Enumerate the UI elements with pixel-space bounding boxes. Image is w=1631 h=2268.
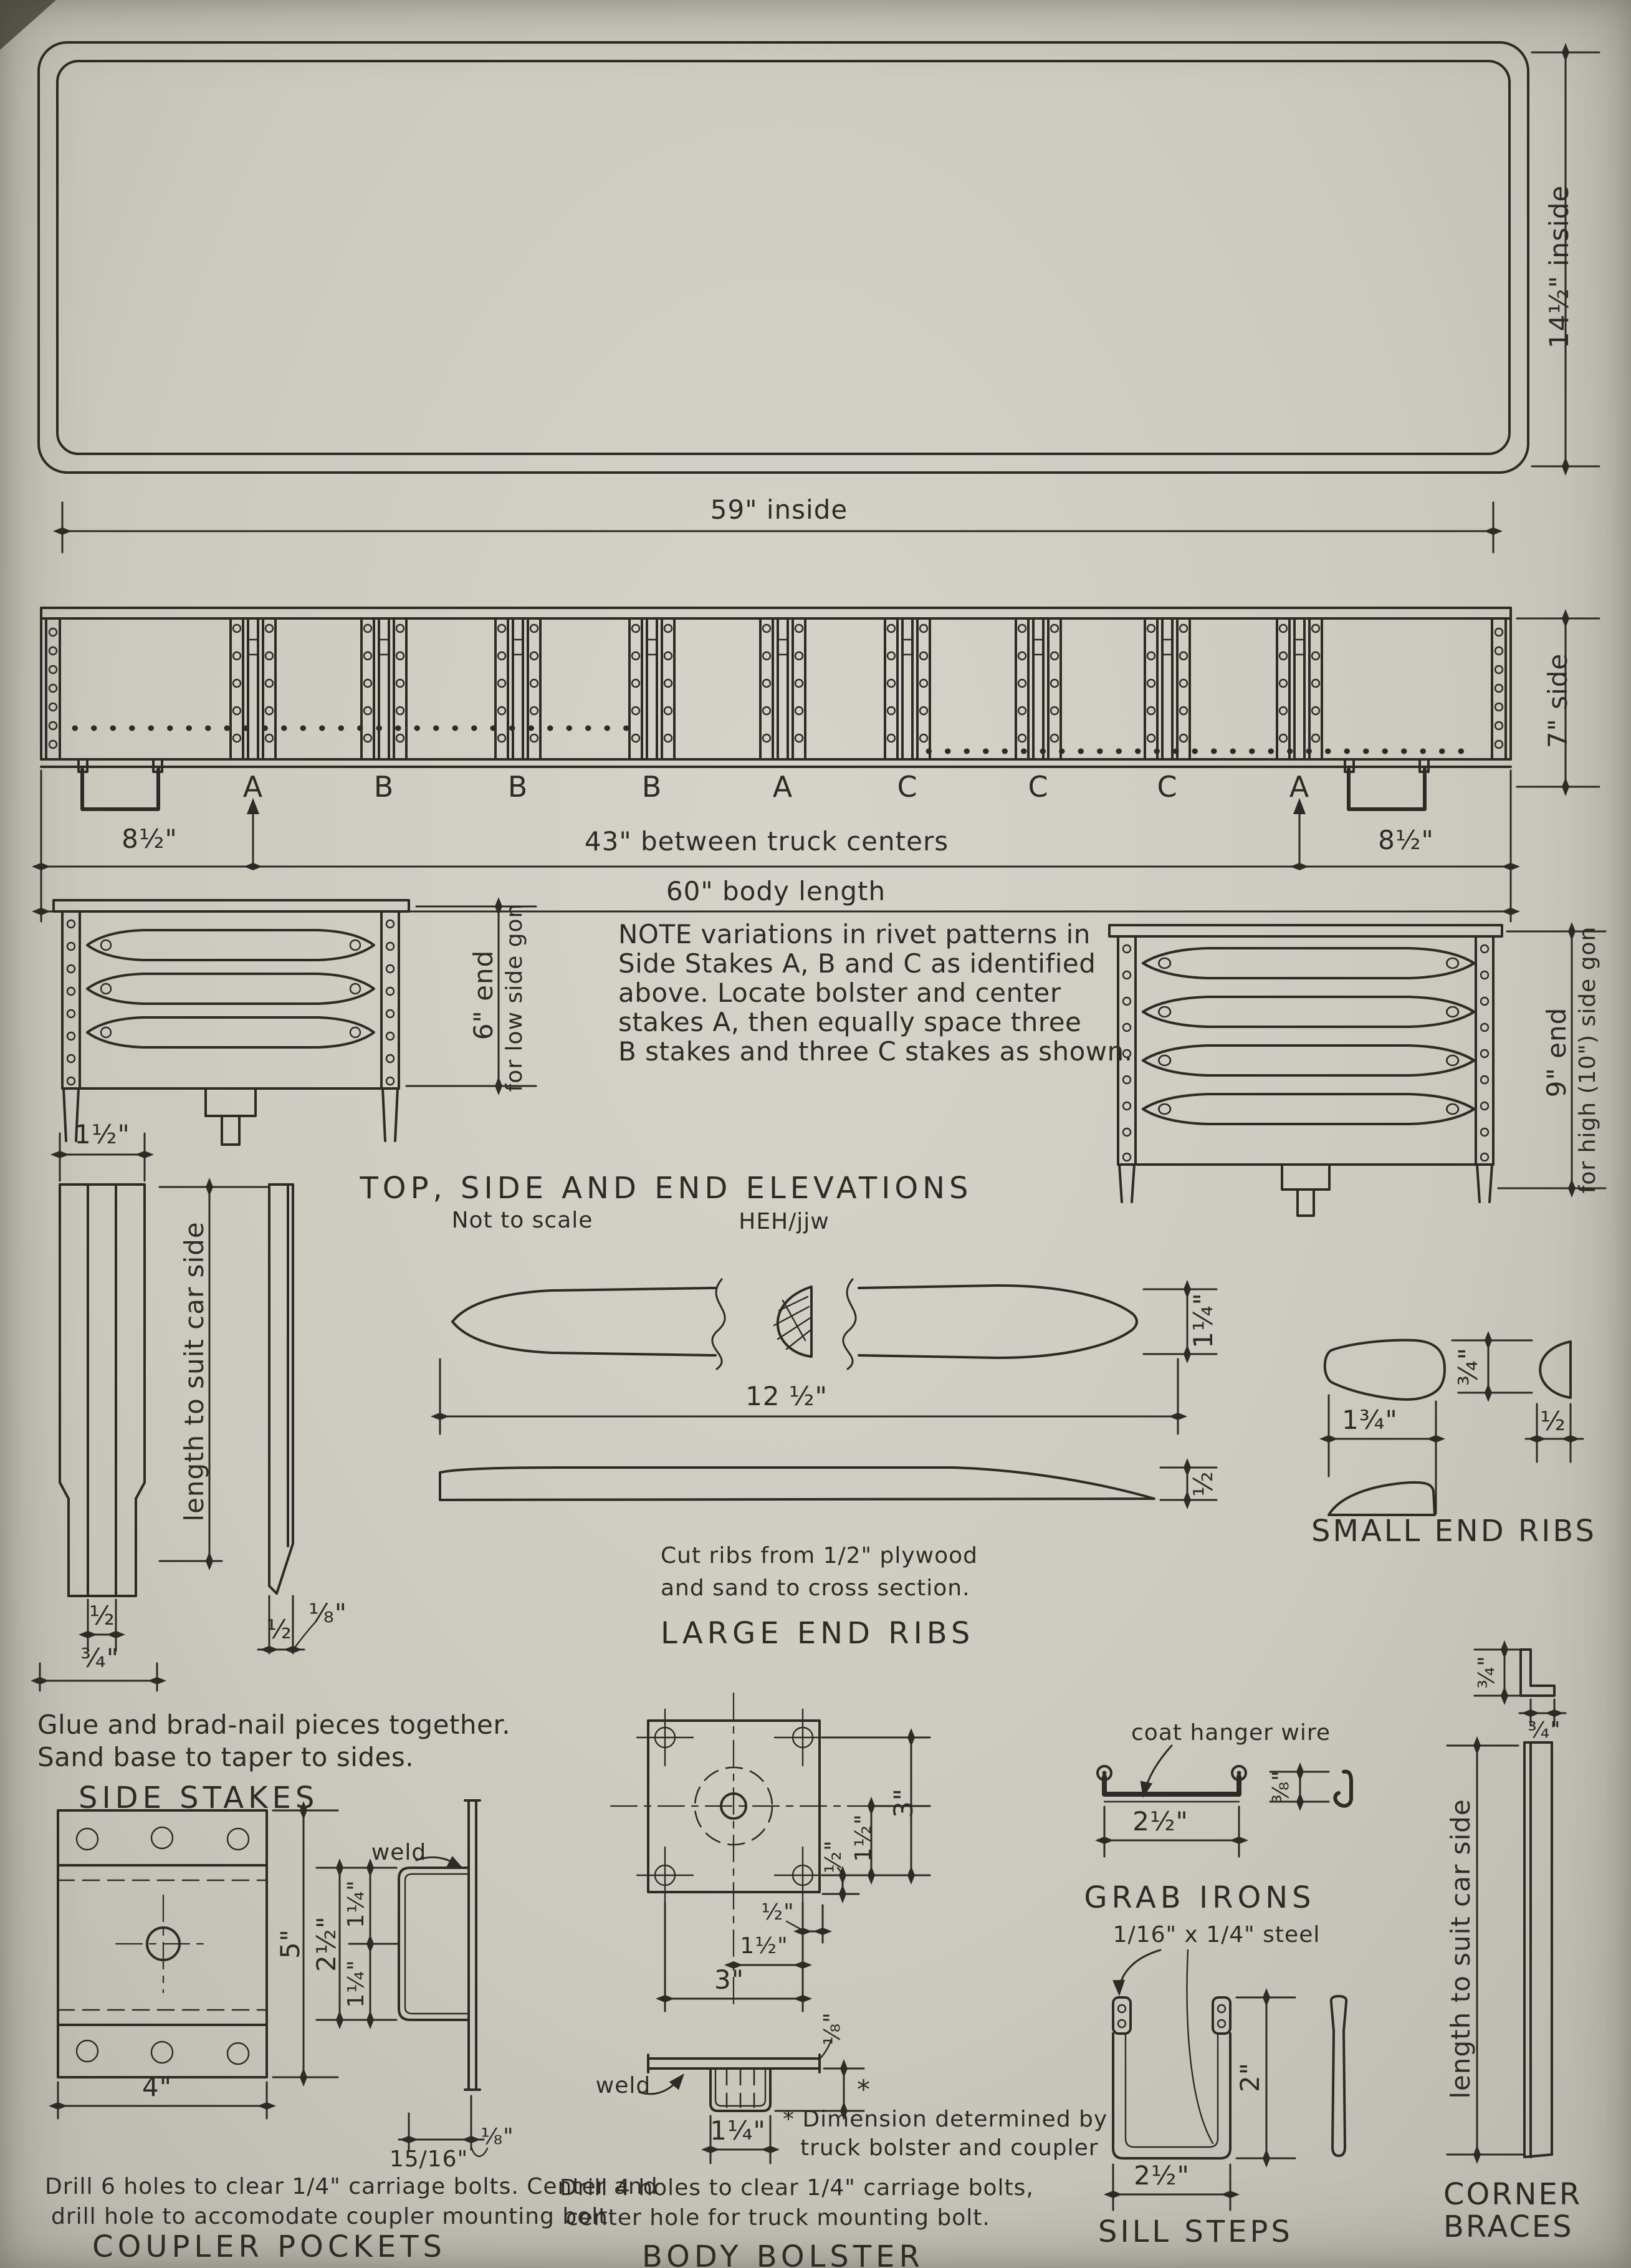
coupler-note-2: drill hole to accomodate coupler mountin… — [51, 2206, 608, 2228]
stake-dim-eighth: ⅛" — [309, 1600, 347, 1627]
dim-overhang-right: 8½" — [1378, 827, 1434, 853]
stake-label: A — [1289, 772, 1309, 801]
stake-label: A — [243, 772, 263, 801]
stake-label: B — [642, 772, 662, 801]
bolster-dim-bottom-half: ½" — [761, 1901, 794, 1924]
bolster-dim-bottom-one-half: 1½" — [740, 1935, 788, 1958]
plan-sheet: 59" inside 14½" inside A B B B A C C C A… — [0, 0, 1631, 2268]
stake-dim-three-quarter: ¾" — [80, 1645, 119, 1671]
stake-dim-width: 1½" — [74, 1122, 130, 1148]
stake-label: B — [508, 772, 529, 801]
bolster-dim-right-half: ½" — [823, 1840, 845, 1873]
grab-iron-dim-width: 2½" — [1132, 1809, 1189, 1835]
stake-label: B — [374, 772, 395, 801]
stake-dim-length: length to suit car side — [181, 1221, 208, 1521]
sheet-title: TOP, SIDE AND END ELEVATIONS — [360, 1173, 972, 1203]
coupler-weld-label: weld — [371, 1842, 426, 1864]
sill-step-callout: 1/16" x 1/4" steel — [1113, 1924, 1321, 1946]
dim-low-end-sub: for low side gon — [504, 903, 526, 1092]
photo-corner-artifact — [0, 0, 56, 50]
small-rib-dim-length: 1¾" — [1342, 1407, 1398, 1433]
dim-side-height: 7" side — [1545, 653, 1571, 748]
drafter-credit: HEH/jjw — [739, 1211, 829, 1233]
scale-note: Not to scale — [452, 1209, 593, 1232]
bolster-dim-right-three: 3" — [891, 1788, 917, 1818]
bolster-star-marker: * — [857, 2077, 871, 2103]
dim-inside-width: 14½" inside — [1546, 185, 1572, 348]
grab-irons-drawing — [1095, 1746, 1351, 1857]
dim-inside-length: 59" inside — [710, 497, 848, 523]
coupler-pockets-title: COUPLER POCKETS — [92, 2232, 446, 2262]
corner-brace-dim-a: ¾" — [1476, 1655, 1498, 1688]
small-rib-dim-height: ¾" — [1455, 1347, 1481, 1386]
note-line-4: stakes A, then equally space three — [618, 1009, 1081, 1035]
rib-note-1: Cut ribs from 1/2" plywood — [661, 1545, 978, 1567]
stake-label: A — [773, 772, 793, 801]
stake-label: C — [1028, 772, 1048, 801]
bolster-star-note-1: * Dimension determined by — [783, 2108, 1107, 2131]
small-rib-dim-thickness: ½ — [1540, 1408, 1566, 1434]
dim-truck-centers: 43" between truck centers — [585, 829, 949, 855]
note-line-3: above. Locate bolster and center — [618, 980, 1061, 1006]
coupler-dim-strap: 2½" — [313, 1916, 340, 1972]
body-bolster-title: BODY BOLSTER — [642, 2242, 924, 2268]
stake-dim-half-b: ½ — [266, 1617, 292, 1643]
bolster-weld-label: weld — [596, 2075, 651, 2097]
rib-dim-length: 12 ½" — [745, 1383, 828, 1410]
corner-braces-title-1: CORNER — [1443, 2179, 1582, 2209]
grab-iron-dim-drop: ⅜" — [1270, 1770, 1293, 1803]
large-end-ribs-title: LARGE END RIBS — [661, 1618, 974, 1648]
coupler-dim-upper: 1¼" — [345, 1880, 368, 1928]
small-end-ribs-title: SMALL END RIBS — [1311, 1516, 1597, 1546]
coupler-dim-depth: 15/16" — [390, 2148, 468, 2171]
stake-label: C — [1157, 772, 1177, 801]
rib-note-2: and sand to cross section. — [661, 1577, 970, 1600]
corner-brace-dim-length: length to suit car side — [1448, 1799, 1474, 2098]
grab-iron-callout: coat hanger wire — [1131, 1722, 1331, 1744]
coupler-dim-height: 5" — [277, 1929, 304, 1959]
stake-note-2: Sand base to taper to sides. — [37, 1744, 414, 1771]
end-view-high — [1109, 922, 1605, 1216]
bolster-note-1: Drill 4 holes to clear 1/4" carriage bol… — [560, 2177, 1034, 2199]
bolster-dim-bottom-three: 3" — [714, 1967, 744, 1993]
drawing-canvas — [0, 0, 1631, 2268]
bolster-dim-pocket: 1¼" — [710, 2118, 766, 2144]
stake-dim-half: ½ — [89, 1603, 115, 1629]
end-view-low — [54, 897, 536, 1145]
sill-steps-title: SILL STEPS — [1098, 2217, 1293, 2247]
coupler-dim-thickness: ⅛" — [481, 2126, 514, 2148]
rib-dim-thickness: ½ — [1190, 1471, 1217, 1497]
coupler-dim-width: 4" — [142, 2074, 172, 2100]
stake-label: C — [897, 772, 917, 801]
bolster-star-note-2: truck bolster and coupler — [800, 2137, 1099, 2160]
bolster-dim-right-one-half: 1½" — [853, 1814, 875, 1862]
dim-high-end: 9" end — [1544, 1007, 1570, 1098]
sill-step-dim-width: 2½" — [1134, 2163, 1190, 2189]
body-bolster-drawing — [611, 1693, 930, 2163]
corner-brace-dim-b: ¾" — [1528, 1719, 1561, 1742]
note-line-5: B stakes and three C stakes as shown. — [618, 1039, 1133, 1065]
grab-irons-title: GRAB IRONS — [1084, 1883, 1315, 1913]
bolster-note-2: center hole for truck mounting bolt. — [566, 2207, 990, 2229]
sill-step-dim-height: 2" — [1237, 2062, 1263, 2092]
coupler-dim-lower: 1¼" — [345, 1959, 368, 2007]
top-view — [39, 42, 1599, 552]
note-line-2: Side Stakes A, B and C as identified — [618, 951, 1096, 977]
dim-low-end: 6" end — [471, 950, 497, 1040]
dim-body-length: 60" body length — [666, 878, 886, 905]
side-view — [32, 608, 1599, 921]
dim-high-end-sub: for high (10") side gon — [1577, 926, 1599, 1194]
side-stakes-title: SIDE STAKES — [79, 1783, 318, 1813]
rib-dim-height: 1¼" — [1190, 1292, 1217, 1348]
bolster-dim-thickness: ⅛" — [821, 2012, 844, 2045]
note-line-1: NOTE variations in rivet patterns in — [618, 921, 1091, 948]
corner-braces-title-2: BRACES — [1443, 2212, 1574, 2242]
stake-note-1: Glue and brad-nail pieces together. — [37, 1712, 510, 1738]
side-stakes-drawing — [31, 1133, 315, 1691]
dim-overhang-left: 8½" — [122, 826, 178, 852]
